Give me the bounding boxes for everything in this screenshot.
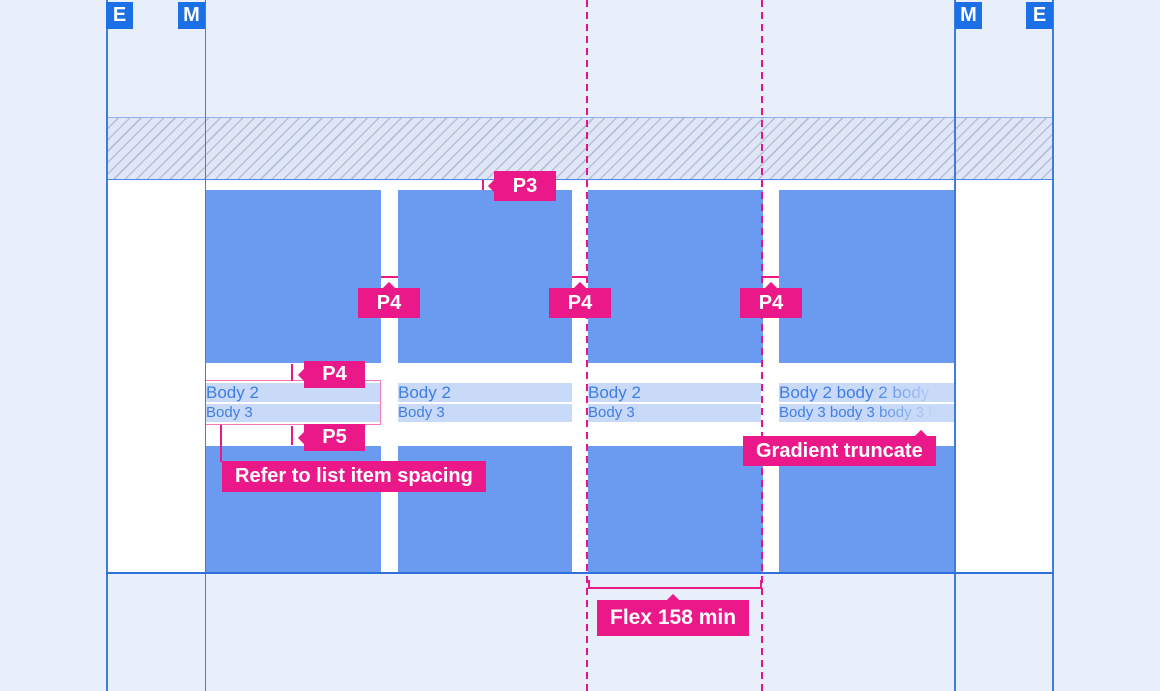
card-tile bbox=[779, 190, 955, 363]
card-tile bbox=[588, 190, 763, 363]
p5-measure-tick bbox=[291, 426, 293, 445]
refer-list-item-spacing-label: Refer to list item spacing bbox=[222, 461, 486, 492]
p4-measure-tick bbox=[381, 276, 398, 278]
p4-badge: P4 bbox=[358, 288, 420, 318]
body3-row-truncated: Body 3 body 3 body 3 body 3 bbox=[779, 404, 955, 422]
gradient-truncate-text: Gradient truncate bbox=[756, 440, 923, 463]
margin-badge-m-right: M bbox=[955, 2, 982, 29]
flex-min-width-text: Flex 158 min bbox=[610, 606, 736, 630]
margin-badge-m-left: M bbox=[178, 2, 205, 29]
body2-row: Body 2 bbox=[398, 383, 572, 402]
p4-text-measure-tick bbox=[291, 364, 293, 381]
margin-badge-e-left: E bbox=[106, 2, 133, 29]
body3-row: Body 3 bbox=[398, 404, 572, 422]
body3-row: Body 3 bbox=[588, 404, 761, 422]
refer-label-text: Refer to list item spacing bbox=[235, 465, 473, 488]
flex-bracket-tick-left bbox=[588, 580, 590, 588]
p4-badge: P4 bbox=[740, 288, 802, 318]
p4-badge: P4 bbox=[549, 288, 611, 318]
p5-badge: P5 bbox=[304, 424, 365, 451]
p5-label: P5 bbox=[322, 426, 346, 449]
card-tile bbox=[205, 190, 381, 363]
body2-row: Body 2 bbox=[588, 383, 761, 402]
flex-bracket-tick-right bbox=[760, 580, 762, 588]
refer-leader-line bbox=[220, 425, 222, 462]
hatched-appbar-band bbox=[106, 117, 1053, 180]
p3-measure-tick bbox=[482, 180, 484, 190]
flex-bracket-line bbox=[588, 587, 762, 589]
inner-margin-line-right bbox=[954, 0, 956, 691]
p3-label: P3 bbox=[513, 175, 537, 198]
inner-margin-line-left bbox=[205, 0, 207, 691]
content-bottom-line bbox=[106, 572, 1053, 574]
spec-canvas: E M M E Body 2 Body 3 Body 2 Body 3 Body… bbox=[0, 0, 1160, 691]
p3-badge: P3 bbox=[494, 171, 556, 201]
p4-badge-text-gap: P4 bbox=[304, 361, 365, 388]
gradient-truncate-label: Gradient truncate bbox=[743, 436, 936, 466]
outer-margin-line-left bbox=[106, 0, 108, 691]
p4-measure-tick bbox=[763, 276, 779, 278]
card-tile bbox=[588, 446, 763, 572]
card-tile bbox=[398, 190, 572, 363]
outer-margin-line-right bbox=[1052, 0, 1054, 691]
margin-badge-e-right: E bbox=[1026, 2, 1053, 29]
body2-row-truncated: Body 2 body 2 body 2 body bbox=[779, 383, 955, 402]
p4-label: P4 bbox=[322, 363, 346, 386]
flex-min-width-label: Flex 158 min bbox=[597, 600, 749, 636]
p4-measure-tick bbox=[572, 276, 588, 278]
